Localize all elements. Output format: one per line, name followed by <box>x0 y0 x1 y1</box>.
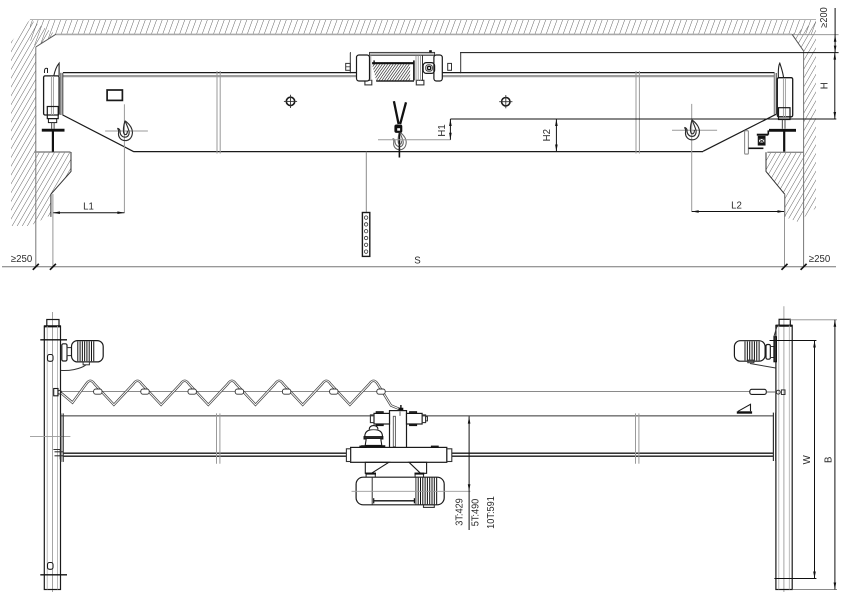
svg-text:H2: H2 <box>542 129 553 142</box>
svg-text:S: S <box>414 255 421 266</box>
svg-text:5T:490: 5T:490 <box>470 499 481 527</box>
svg-text:H1: H1 <box>437 124 448 137</box>
svg-text:H: H <box>819 82 830 89</box>
svg-text:W: W <box>802 455 813 465</box>
svg-text:≥250: ≥250 <box>11 254 33 265</box>
svg-text:B: B <box>823 456 834 463</box>
svg-text:10T:591: 10T:591 <box>485 496 496 529</box>
svg-text:≥200: ≥200 <box>819 7 830 27</box>
svg-text:≥250: ≥250 <box>809 254 831 265</box>
svg-text:3T:429: 3T:429 <box>454 498 465 526</box>
svg-text:L2: L2 <box>731 200 742 211</box>
svg-text:L1: L1 <box>83 201 94 212</box>
